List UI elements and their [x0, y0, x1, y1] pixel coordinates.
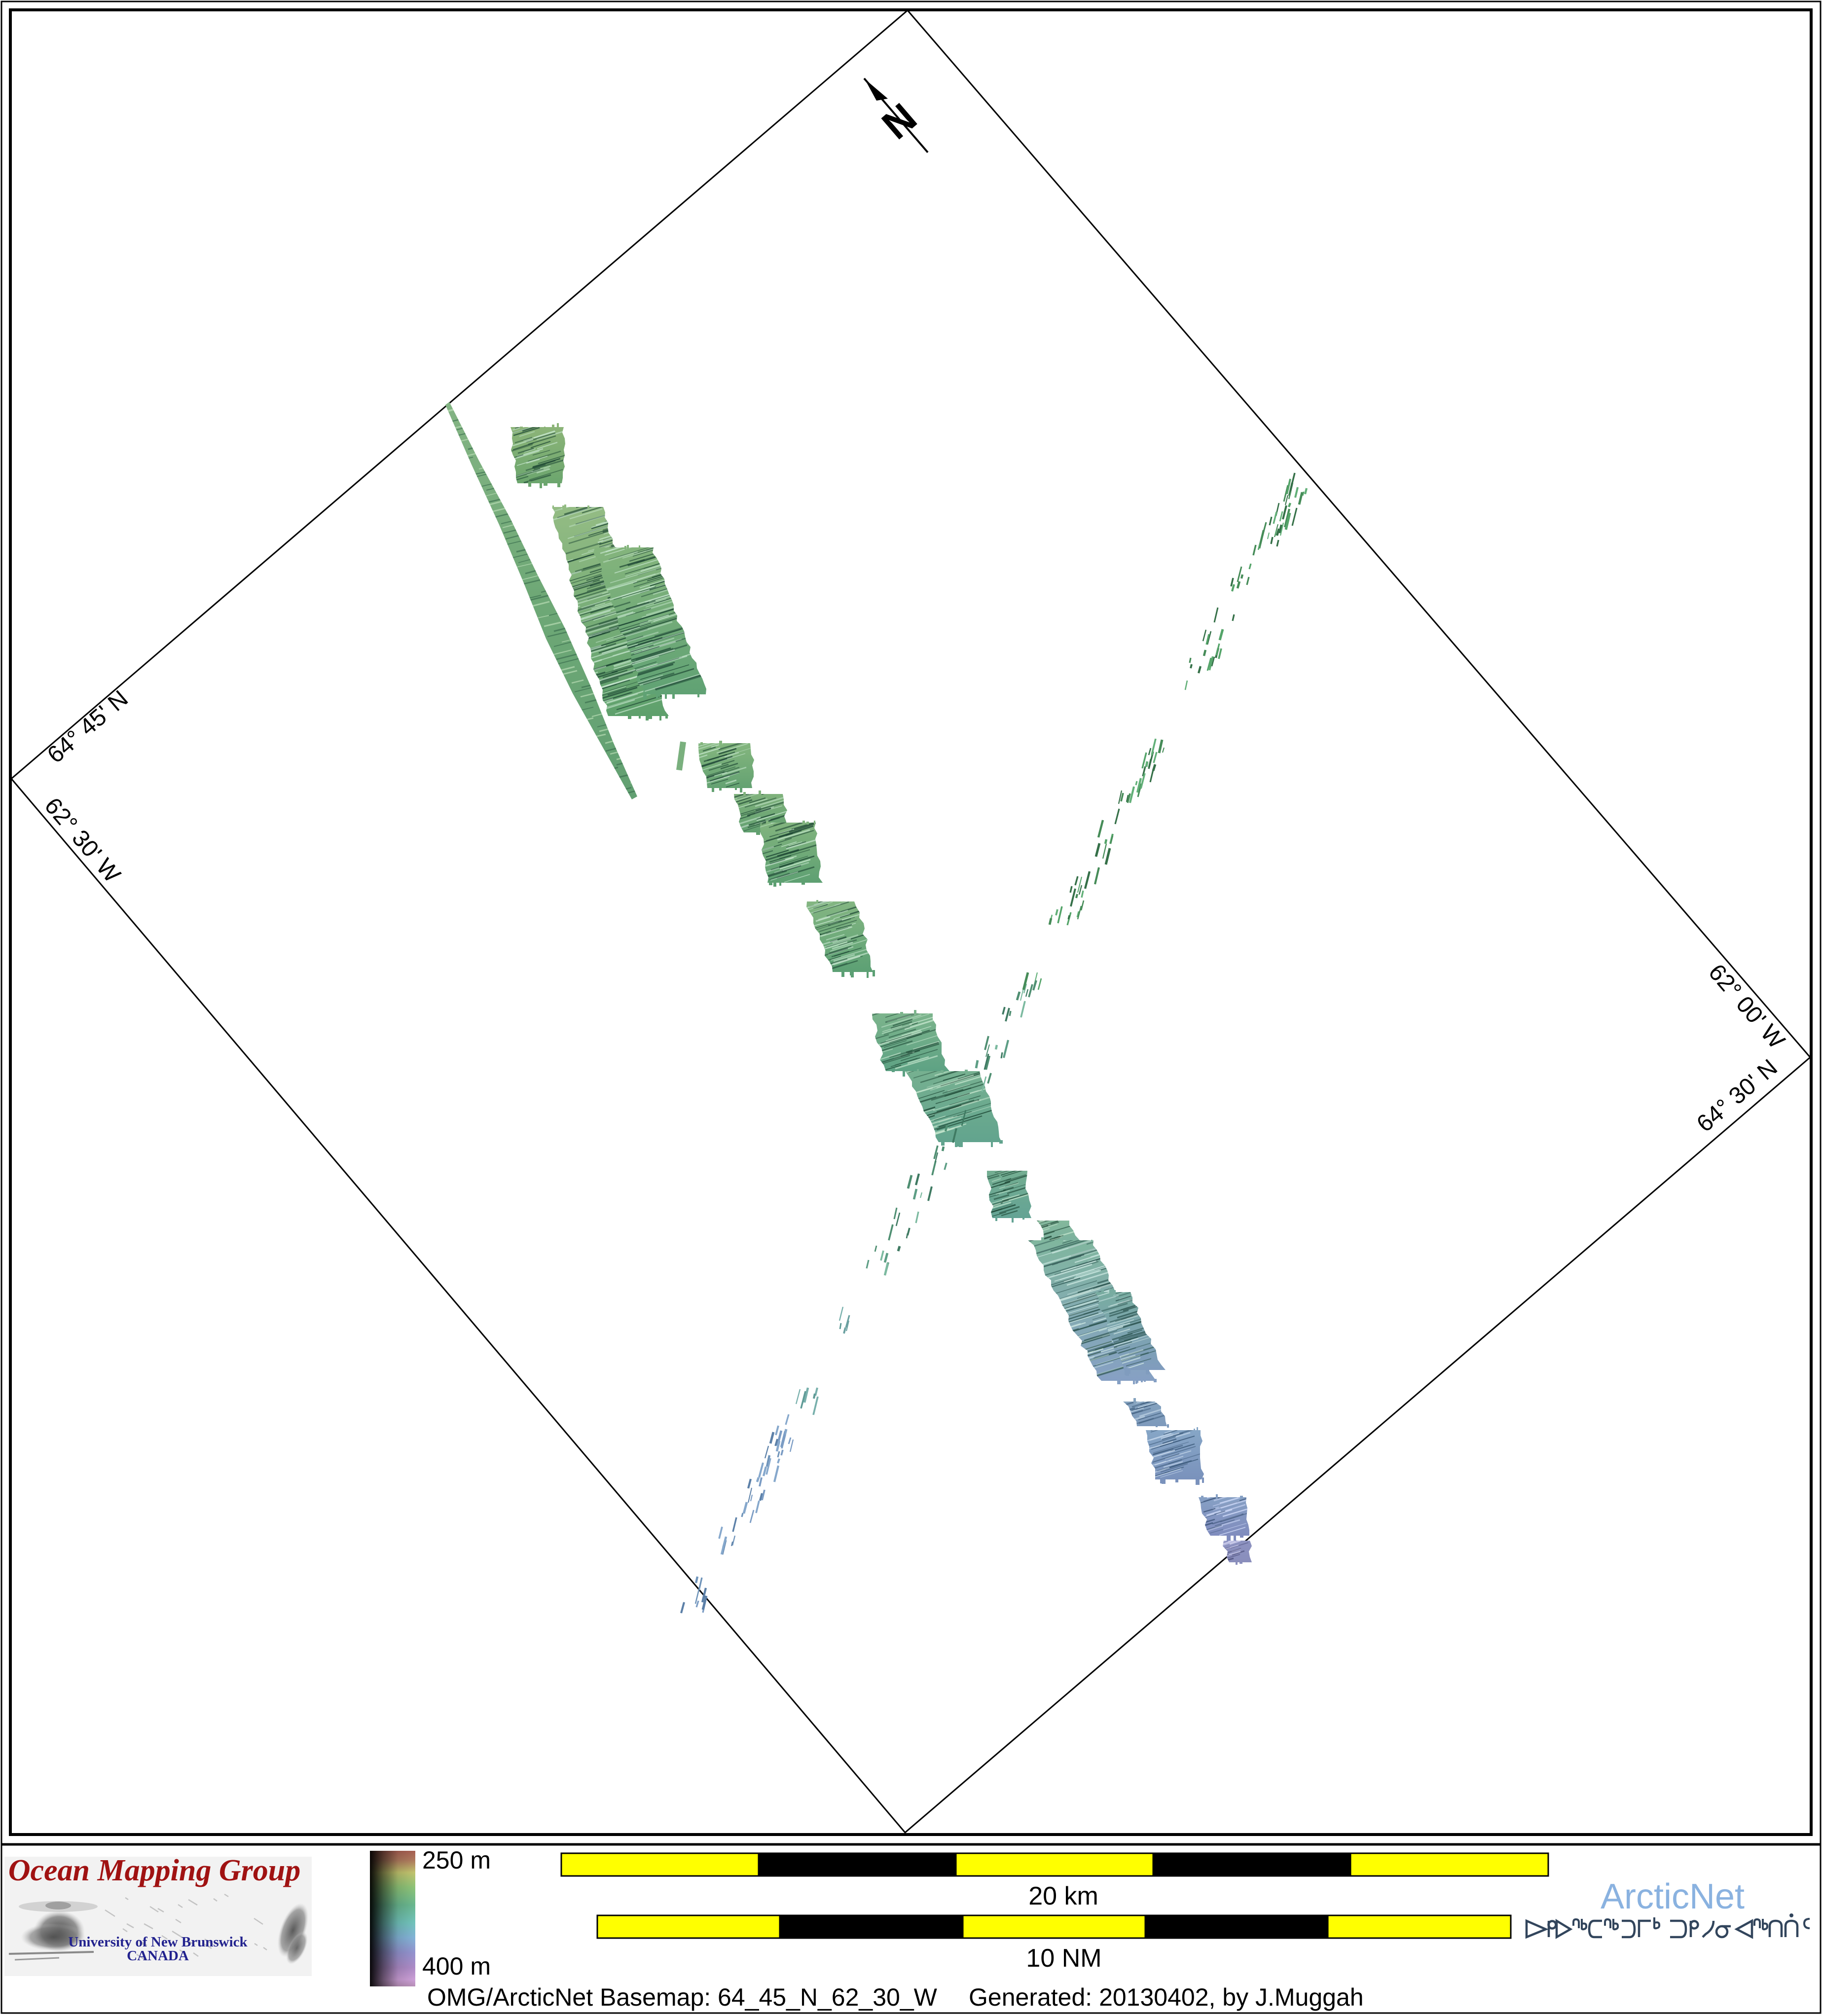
svg-text:Generated: 20130402, by J.Mugg: Generated: 20130402, by J.Muggah	[969, 1983, 1364, 2011]
svg-text:Ocean Mapping Group: Ocean Mapping Group	[8, 1854, 301, 1887]
svg-text:10 NM: 10 NM	[1026, 1944, 1101, 1973]
svg-text:400 m: 400 m	[422, 1952, 491, 1980]
svg-text:OMG/ArcticNet Basemap: 64_45_N: OMG/ArcticNet Basemap: 64_45_N_62_30_W	[427, 1983, 938, 2011]
svg-text:CANADA: CANADA	[127, 1948, 189, 1964]
svg-text:250 m: 250 m	[422, 1846, 491, 1874]
svg-text:ArcticNet: ArcticNet	[1601, 1877, 1745, 1916]
svg-text:20 km: 20 km	[1028, 1882, 1098, 1910]
